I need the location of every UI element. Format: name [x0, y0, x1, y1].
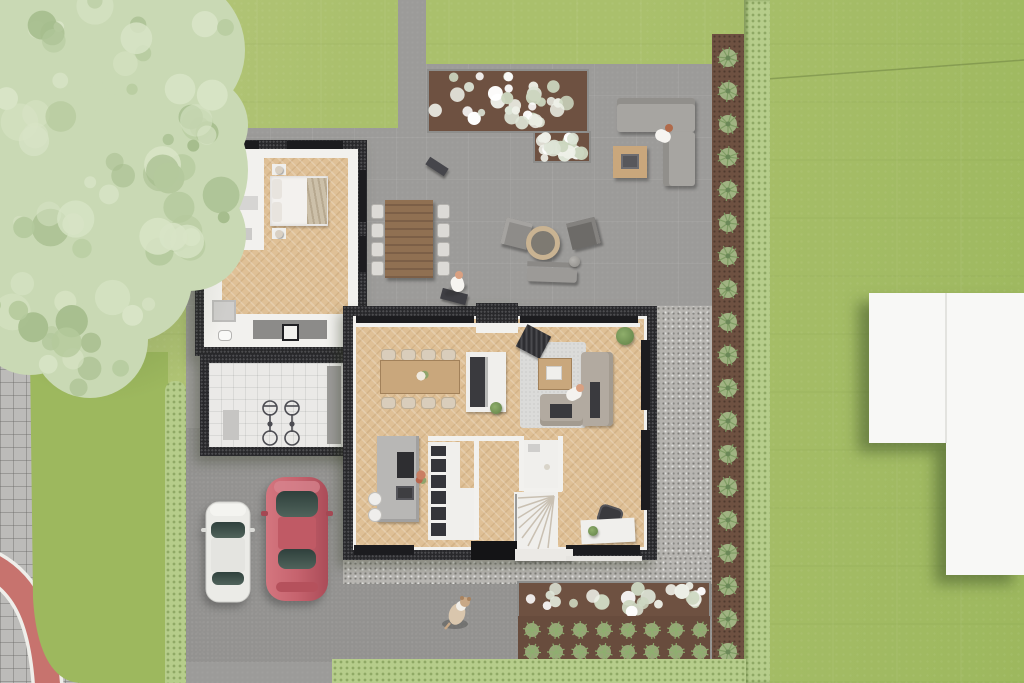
wc-room [524, 440, 558, 488]
border-shrub-column [708, 30, 748, 683]
border-shrub [717, 608, 739, 629]
window-strip [354, 545, 414, 555]
garden-ball [569, 256, 580, 267]
border-shrub [717, 344, 738, 366]
foliage-mottle [1, 103, 39, 141]
patio-chairs-left [371, 204, 383, 282]
flower-cluster [478, 109, 485, 116]
border-shrub [717, 378, 739, 399]
aerial-render-stage [0, 0, 1024, 683]
flower-cluster [550, 596, 561, 607]
flower-cluster [547, 97, 556, 106]
bed-throw [307, 178, 327, 224]
coffee-table-tray [546, 366, 562, 380]
chair [371, 223, 384, 238]
border-shrub [718, 542, 739, 563]
houseplant [616, 327, 634, 345]
flower-cluster [526, 594, 536, 604]
window-strip [287, 141, 343, 149]
cooktop [397, 452, 414, 478]
table-tray [621, 154, 639, 169]
door-stoop [515, 549, 573, 561]
chair [441, 397, 456, 409]
border-shrub [717, 47, 738, 68]
main-wing [343, 306, 657, 560]
chair [371, 204, 384, 219]
border-shrub [718, 246, 739, 267]
person-indoor [562, 382, 590, 406]
flower-cluster [505, 84, 513, 92]
foliage-mottle [203, 177, 240, 214]
wc-vase [544, 464, 550, 470]
chair [437, 242, 450, 257]
dining-chairs-bottom [381, 397, 461, 409]
flower-cluster [450, 87, 465, 102]
skylight-sill [476, 327, 518, 333]
foliage-mottle [112, 360, 129, 377]
foliage-mottle [163, 134, 174, 145]
person-standing [444, 268, 474, 298]
hedge-bottom [332, 659, 746, 683]
neighbor-roof [850, 283, 1024, 585]
storage-cabinet-row [327, 366, 341, 444]
chair [421, 397, 436, 409]
flower-cluster [488, 86, 503, 101]
foliage-mottle [13, 217, 34, 238]
flower-cluster [547, 80, 560, 93]
flower-cluster [654, 600, 663, 609]
foliage-mottle [81, 333, 101, 353]
fire-bowl [526, 226, 560, 260]
wall-line-v [474, 436, 479, 540]
flower-cluster [501, 92, 513, 104]
outdoor-coffee-table [613, 146, 647, 178]
chair [437, 223, 450, 238]
flower-cluster [529, 114, 543, 128]
window-strip [641, 340, 650, 410]
flower-cluster [586, 589, 599, 602]
foliage-mottle [45, 101, 76, 132]
foliage-mottle [192, 11, 218, 37]
flower-cluster [528, 102, 536, 110]
desk-plant [588, 526, 598, 536]
car-white [201, 502, 255, 602]
kitchen-stool [368, 508, 382, 522]
dining-table [380, 360, 460, 394]
flower-cluster [512, 106, 520, 114]
dog-ear [467, 597, 471, 601]
flower-cluster [569, 599, 578, 608]
chair [371, 261, 384, 276]
front-door [471, 541, 517, 560]
foliage-mottle [72, 239, 91, 258]
foliage-mottle [121, 22, 153, 54]
bench-seat [527, 267, 577, 283]
foliage-mottle [9, 301, 28, 320]
shelf-cubbies [431, 446, 446, 536]
border-shrub [717, 411, 738, 432]
window-strip [359, 236, 366, 272]
car-red [261, 477, 333, 601]
foliage-mottle [106, 153, 124, 171]
flower-cluster [515, 116, 528, 129]
vegetable-rows [516, 616, 714, 664]
border-shrub [717, 278, 738, 299]
foliage-mottle [11, 272, 34, 295]
media-unit [550, 404, 572, 418]
border-shrub [717, 179, 739, 200]
console-table [590, 382, 600, 418]
flower-cluster [674, 584, 689, 599]
chair [401, 397, 416, 409]
person-head [576, 384, 584, 392]
border-shrub [718, 212, 739, 234]
foliage-mottle [218, 211, 230, 223]
window-strip [641, 430, 650, 510]
foliage-mottle [52, 73, 68, 89]
inner-wall-line [356, 323, 640, 327]
flower-cluster [476, 72, 484, 80]
patio-flower-bed [426, 68, 594, 166]
dog [440, 594, 482, 638]
kitchen-stool [368, 492, 382, 506]
window-strip [566, 545, 640, 555]
counter [458, 488, 474, 540]
border-shrub [718, 80, 738, 102]
border-shrub [717, 146, 739, 168]
foliage-mottle [84, 176, 96, 188]
window-strip [359, 170, 366, 222]
foliage-mottle [99, 184, 119, 204]
border-shrub [718, 444, 738, 465]
person-outdoor-sofa [653, 122, 677, 144]
foliage-mottle [122, 305, 143, 326]
flower-cluster [549, 583, 561, 595]
south-planter-bed [516, 580, 714, 620]
flower-cluster [541, 154, 549, 162]
foliage-mottle [180, 104, 212, 136]
foliage-mottle [113, 51, 138, 76]
chair [381, 397, 396, 409]
foliage-mottle [126, 84, 137, 95]
flower-cluster [429, 104, 442, 117]
shelving-unit [428, 442, 460, 540]
foliage-mottle [217, 19, 234, 36]
flower-cluster [537, 97, 546, 106]
parked-cars [190, 470, 340, 615]
wc-basin [528, 444, 540, 452]
flower-cluster [545, 141, 560, 156]
tree-canopy [0, 0, 285, 400]
person-head [455, 271, 463, 279]
flower-bouquet [415, 468, 427, 488]
stairs [514, 492, 558, 550]
border-shrub [718, 113, 738, 135]
foliage-mottle [182, 228, 200, 246]
foliage-mottle [142, 297, 155, 310]
houseplant [490, 402, 502, 414]
flower-cluster [449, 73, 458, 82]
border-shrub [717, 476, 738, 498]
flower-cluster [637, 597, 649, 609]
sideboard-edge [485, 357, 488, 407]
foliage-mottle [70, 378, 88, 396]
flower-cluster [504, 72, 513, 81]
wc-wall [558, 436, 563, 491]
chair [371, 242, 384, 257]
foliage-mottle [42, 29, 66, 53]
kitchen-island [377, 436, 419, 522]
foliage-mottle [62, 213, 84, 235]
border-shrub [717, 575, 739, 596]
foliage-mottle [153, 162, 184, 193]
patio-dining-table [385, 200, 433, 278]
person-head [665, 124, 673, 132]
dog-ear [460, 596, 464, 600]
flower-cluster [464, 82, 474, 92]
table-centerpiece [412, 370, 430, 382]
foliage-mottle [52, 327, 82, 357]
foliage-mottle [187, 140, 199, 152]
hedge-right [744, 0, 770, 683]
foliage-mottle [165, 74, 196, 105]
border-shrub [717, 510, 738, 531]
border-shrub [718, 312, 739, 333]
window-sill [566, 556, 642, 561]
chair [437, 204, 450, 219]
foliage-mottle [39, 355, 58, 374]
kitchen-sink [396, 486, 414, 500]
tv-panel [470, 357, 485, 407]
window-strip [520, 316, 638, 323]
flower-cluster [567, 133, 579, 145]
window-strip [356, 316, 474, 323]
